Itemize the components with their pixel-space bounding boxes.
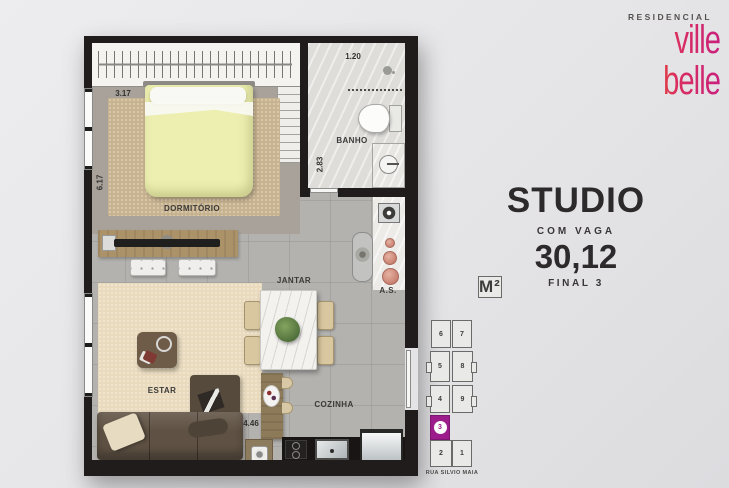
keyplan-unit-6: 6 [431, 320, 451, 348]
toilet [358, 104, 390, 133]
bed-sheet-fold [145, 102, 253, 116]
dimension-banho-width: 1.20 [336, 52, 370, 61]
bed [145, 85, 253, 197]
shower-divider [348, 89, 402, 91]
area-unit: M² [478, 276, 502, 298]
bed-pillows [150, 87, 246, 104]
dining-chair [244, 301, 261, 330]
burner [292, 451, 300, 459]
coffee-table [137, 332, 177, 368]
kitchen-sink [315, 439, 349, 460]
bathroom-door [310, 188, 338, 193]
parking-subtitle: COM VAGA [478, 226, 674, 237]
window [84, 88, 93, 170]
dimension-cozinha-width: 4.46 [234, 419, 268, 428]
decor-pot [383, 251, 397, 265]
keyplan-unit-8: 8 [452, 351, 473, 382]
ottoman [130, 259, 166, 276]
room-label-as: A.S. [372, 286, 404, 295]
title-block: STUDIO COM VAGA 30,12 M² FINAL 3 [478, 181, 674, 289]
burner [292, 442, 300, 450]
keyplan-unit-2: 2 [430, 440, 452, 467]
dimension-left-height: 6.17 [96, 166, 105, 200]
building-key-plan: 6 7 5 8 4 9 3 2 1 [428, 318, 476, 478]
street-label: RUA SILVIO MAIA [421, 470, 483, 476]
dining-chair [244, 336, 261, 365]
entry-door [406, 350, 411, 408]
bathroom-wall [300, 36, 308, 197]
unit-type-title: STUDIO [478, 181, 674, 221]
decor-items [142, 350, 157, 364]
faucet [387, 163, 399, 165]
wall-right [405, 36, 418, 476]
ottoman [178, 259, 216, 276]
washing-machine [352, 232, 373, 282]
dining-chair [317, 301, 334, 330]
closet-shelves [277, 87, 301, 163]
fruit-plate [263, 385, 280, 407]
bathroom-wall [300, 188, 310, 197]
dimension-dorm-width: 3.17 [106, 89, 140, 98]
highlighted-unit-badge: 3 [434, 421, 447, 434]
hanger-rail [98, 51, 292, 78]
logo-word-belle: belle [634, 63, 720, 98]
window [84, 293, 93, 397]
room-label-estar: ESTAR [132, 386, 192, 395]
wall-bottom [84, 460, 418, 476]
room-label-cozinha: COZINHA [299, 400, 369, 409]
decor-pot [385, 238, 395, 248]
sink-drain [330, 449, 334, 453]
cooktop [285, 440, 307, 459]
tray [156, 336, 172, 352]
keyplan-unit-9: 9 [452, 385, 473, 413]
tv-sideboard [98, 230, 238, 257]
bathroom-wall [338, 188, 405, 197]
plant-centerpiece [275, 317, 300, 342]
area-number: 30,12 [535, 238, 618, 275]
wall-top [84, 36, 418, 43]
keyplan-unit-5: 5 [430, 351, 450, 382]
laundry-tank [378, 203, 400, 223]
toilet-tank [389, 105, 402, 132]
keyplan-unit-3-highlighted: 3 [430, 415, 450, 440]
area-value: 30,12 M² [478, 238, 674, 276]
bathroom-vanity [372, 143, 405, 188]
dining-chair [317, 336, 334, 365]
logo: RESIDENCIAL ville belle [628, 12, 720, 91]
floor-plan: 3.17 6.17 DORMITÓRIO ESTAR JANTAR COZINH… [84, 36, 418, 476]
tv [114, 239, 220, 247]
final-label: FINAL 3 [478, 278, 674, 289]
shower-icon [383, 66, 392, 75]
logo-word-ville: ville [634, 22, 720, 57]
dimension-banho-height: 2.83 [316, 148, 325, 182]
keyplan-unit-7: 7 [452, 320, 472, 348]
room-label-dormitorio: DORMITÓRIO [142, 204, 242, 213]
room-label-jantar: JANTAR [264, 276, 324, 285]
keyplan-unit-4: 4 [430, 385, 450, 413]
keyplan-unit-1: 1 [452, 440, 472, 467]
decor-pot [382, 268, 399, 285]
